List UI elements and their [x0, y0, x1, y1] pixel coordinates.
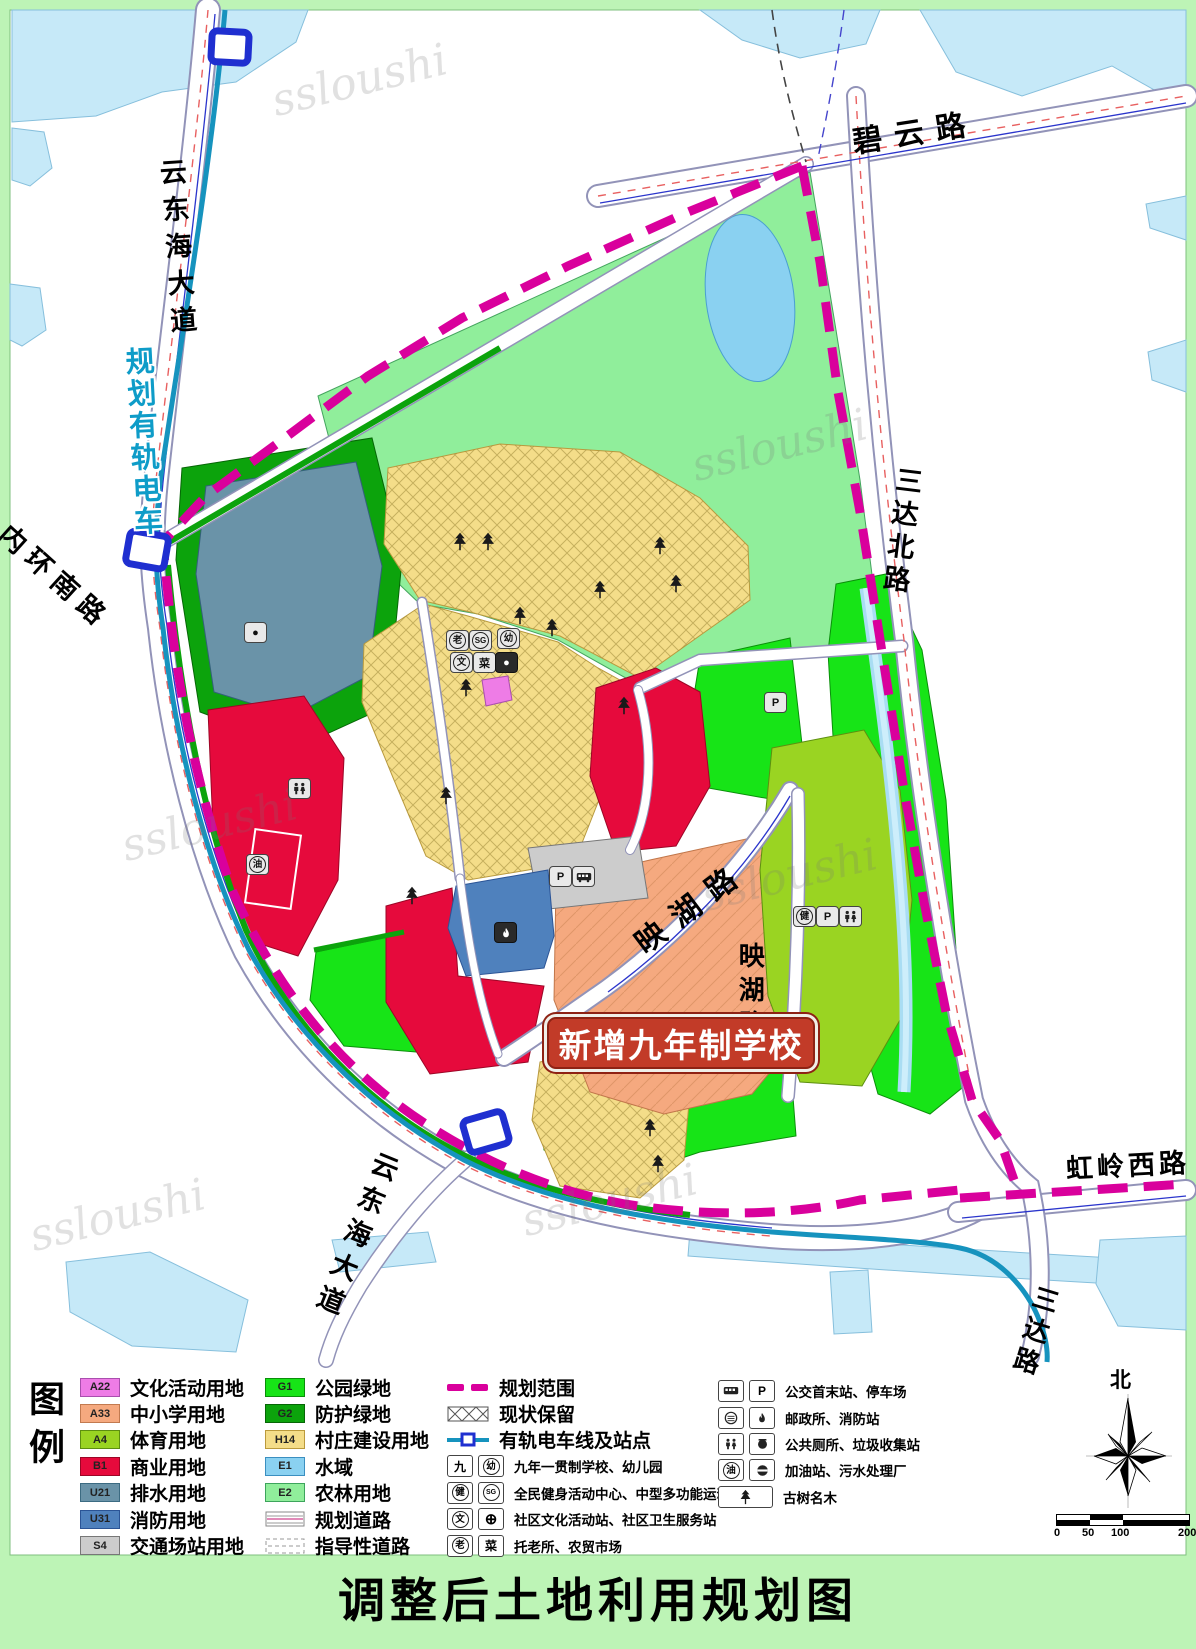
kindergarten-icon: 幼 [478, 1455, 504, 1477]
parking-icon: P [764, 692, 787, 713]
fitness-center-icon: 健 [447, 1482, 473, 1504]
garbage-station-icon [749, 1433, 775, 1455]
new-school-callout: 新增九年制学校 [544, 1014, 818, 1072]
fitness-center-icon: 健 [793, 906, 816, 927]
legend-col-2: G1公园绿地 G2防护绿地 H14村庄建设用地 E1水域 E2农林用地 规划道路… [265, 1374, 429, 1559]
parcel-a22-culture [482, 676, 512, 706]
legend-item: G1公园绿地 [265, 1374, 429, 1400]
road-label-hongling-west: 虹岭西路 [1065, 1149, 1190, 1184]
legend-col-3: 规划范围 现状保留 有轨电车线及站点 九幼九年一贯制学校、幼儿园 健SG全民健身… [447, 1374, 744, 1559]
legend-item: S4交通场站用地 [80, 1532, 244, 1558]
legend-swatch-h14: H14 [265, 1430, 305, 1449]
legend-item: P公交首末站、停车场 [718, 1378, 920, 1404]
tram-station-icon [207, 27, 253, 67]
legend-item: 指导性道路 [265, 1532, 429, 1558]
legend-swatch-g1: G1 [265, 1378, 305, 1397]
legend-swatch-a33: A33 [80, 1404, 120, 1423]
legend-swatch-u21: U21 [80, 1483, 120, 1502]
legend-item: 油加油站、污水处理厂 [718, 1457, 920, 1483]
legend-item: 规划范围 [447, 1374, 744, 1400]
gas-station-icon: 油 [718, 1459, 744, 1481]
sports-ground-icon: SG [478, 1482, 504, 1504]
page-title: 调整后土地利用规划图 [10, 1562, 1186, 1631]
legend-swatch-g2: G2 [265, 1404, 305, 1423]
legend-item: B1商业用地 [80, 1453, 244, 1479]
legend-col-4: P公交首末站、停车场 邮政所、消防站 公共厕所、垃圾收集站 油加油站、污水处理厂… [718, 1378, 920, 1510]
sports-ground-icon: SG [469, 630, 492, 651]
legend-item: U31消防用地 [80, 1506, 244, 1532]
culture-station-icon: 文 [450, 652, 473, 673]
ancient-tree-icon [718, 1486, 773, 1508]
new-school-callout-text: 新增九年制学校 [559, 1019, 804, 1067]
legend-item: 健SG全民健身活动中心、中型多功能运动场 [447, 1480, 744, 1506]
legend-item: 文⊕社区文化活动站、社区卫生服务站 [447, 1506, 744, 1532]
planned-road-swatch [265, 1511, 305, 1527]
sewage-plant-icon [749, 1459, 775, 1481]
legend-item: 公共厕所、垃圾收集站 [718, 1431, 920, 1457]
legend-swatch-e1: E1 [265, 1457, 305, 1476]
elder-care-icon: 老 [446, 630, 469, 651]
legend-col-1: A22文化活动用地 A33中小学用地 A4体育用地 B1商业用地 U21排水用地… [80, 1374, 244, 1559]
planning-range-swatch [447, 1380, 489, 1394]
tram-line-swatch [447, 1432, 489, 1448]
legend-swatch-b1: B1 [80, 1457, 120, 1476]
legend-item: U21排水用地 [80, 1480, 244, 1506]
legend-item: 邮政所、消防站 [718, 1404, 920, 1430]
guide-road-swatch [265, 1538, 305, 1554]
parking-icon: P [549, 866, 572, 887]
legend-swatch-s4: S4 [80, 1536, 120, 1555]
garbage-station-icon: ● [495, 652, 518, 673]
legend-item: 九幼九年一贯制学校、幼儿园 [447, 1453, 744, 1479]
public-toilet-icon [718, 1433, 744, 1455]
health-station-icon: ⊕ [478, 1508, 504, 1530]
legend-item: H14村庄建设用地 [265, 1427, 429, 1453]
legend-heading: 图例 [18, 1380, 70, 1476]
legend-item: A33中小学用地 [80, 1400, 244, 1426]
nine-year-school-icon: 九 [447, 1455, 473, 1477]
parking-icon: P [749, 1380, 775, 1402]
elder-care-icon: 老 [447, 1535, 473, 1557]
legend-item: A4体育用地 [80, 1427, 244, 1453]
legend-item: 老菜托老所、农贸市场 [447, 1532, 744, 1558]
post-office-icon [718, 1407, 744, 1429]
legend-swatch-a22: A22 [80, 1378, 120, 1397]
legend: 图例 A22文化活动用地 A33中小学用地 A4体育用地 B1商业用地 U21排… [0, 1368, 1186, 1554]
legend-item: 古树名木 [718, 1484, 920, 1510]
bus-terminal-icon [572, 866, 595, 887]
fire-station-icon [494, 922, 517, 943]
public-toilet-icon [288, 778, 311, 799]
status-keep-swatch [447, 1406, 489, 1422]
gas-station-icon: 油 [246, 854, 269, 875]
legend-item: A22文化活动用地 [80, 1374, 244, 1400]
market-icon: 菜 [478, 1535, 504, 1557]
bus-terminal-icon [718, 1380, 744, 1402]
planning-map: 老 SG 文 菜 幼 ● ● 油 P 健 P P 碧云路 云东海大道 规划有轨电… [0, 0, 1196, 1556]
legend-item: E2农林用地 [265, 1480, 429, 1506]
sewage-icon: ● [244, 622, 267, 643]
parking-icon: P [816, 906, 839, 927]
legend-swatch-a4: A4 [80, 1430, 120, 1449]
legend-item: 有轨电车线及站点 [447, 1427, 744, 1453]
kindergarten-icon: 幼 [497, 628, 520, 649]
culture-station-icon: 文 [447, 1508, 473, 1530]
fire-station-icon [749, 1407, 775, 1429]
legend-item: 现状保留 [447, 1400, 744, 1426]
market-icon: 菜 [473, 652, 496, 673]
legend-swatch-u31: U31 [80, 1510, 120, 1529]
legend-item: G2防护绿地 [265, 1400, 429, 1426]
public-toilet-icon [839, 906, 862, 927]
legend-item: 规划道路 [265, 1506, 429, 1532]
legend-item: E1水域 [265, 1453, 429, 1479]
page-frame: 老 SG 文 菜 幼 ● ● 油 P 健 P P 碧云路 云东海大道 规划有轨电… [0, 0, 1196, 1649]
legend-swatch-e2: E2 [265, 1483, 305, 1502]
